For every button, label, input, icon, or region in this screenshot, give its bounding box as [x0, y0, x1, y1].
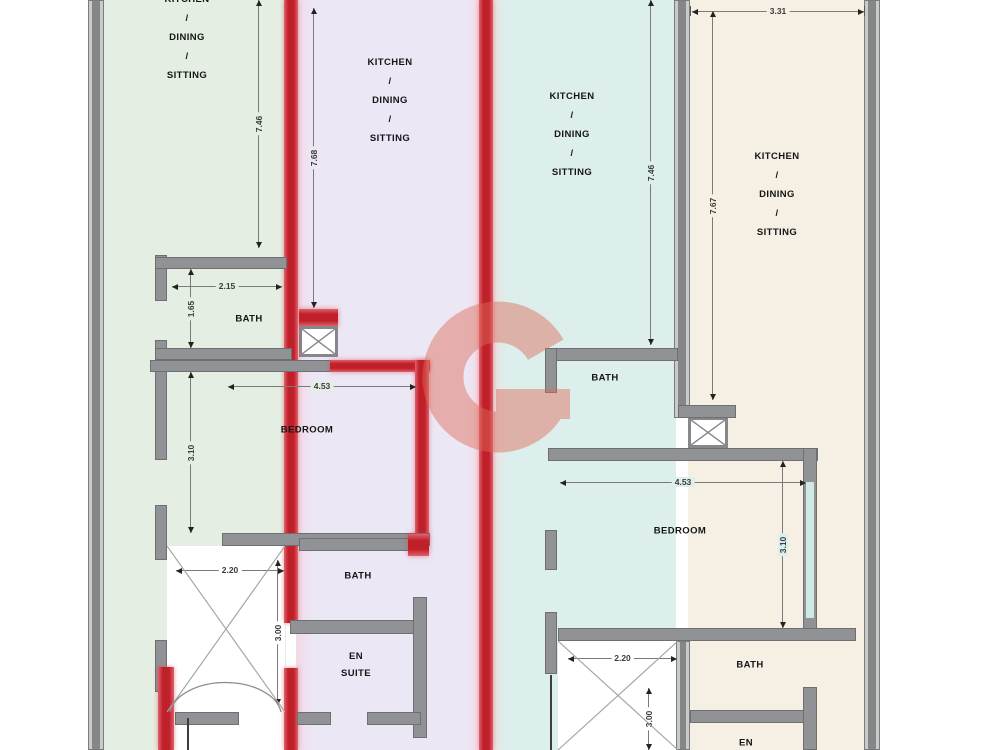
dim-unit1-living-height: 7.46: [258, 0, 259, 248]
dim-label: 7.46: [646, 161, 656, 184]
exterior-wall-left: [88, 0, 104, 750]
dim-unit3-bedroom-width: 4.53: [560, 482, 806, 483]
shaft-red-cap: [299, 309, 338, 326]
room-label-line: DINING: [164, 28, 209, 47]
dim-extension-line: [550, 675, 552, 750]
dim-label: 4.53: [672, 477, 695, 487]
room-label-line: /: [164, 47, 209, 66]
unit-2-living-label: KITCHEN / DINING / SITTING: [367, 53, 412, 148]
unit-3-living-label: KITCHEN / DINING / SITTING: [549, 87, 594, 182]
room-label-line: EN: [341, 648, 371, 665]
wall-segment: [545, 530, 557, 570]
unit-4-bath-label: BATH: [736, 660, 763, 671]
dim-unit4-living-height: 7.67: [712, 11, 713, 400]
wall-segment: [803, 687, 817, 750]
wall-segment: [290, 620, 422, 634]
wall-segment: [690, 710, 805, 723]
dim-unit2-living-height: 7.68: [313, 8, 314, 308]
unit-3-bedroom-label: BEDROOM: [654, 526, 706, 537]
dim-unit1-shaft-width: 2.20: [176, 570, 284, 571]
shaft-x-diagonal: [691, 420, 725, 445]
dim-label: 1.65: [186, 297, 196, 320]
party-wall-red: [479, 0, 493, 750]
wall-segment-red: [408, 534, 429, 556]
room-label-line: /: [549, 144, 594, 163]
room-label-line: /: [367, 110, 412, 129]
room-label-line: KITCHEN: [549, 87, 594, 106]
wall-segment: [545, 612, 557, 674]
shaft-x-diagonal: [691, 420, 725, 445]
wall-segment: [155, 505, 167, 560]
dim-label: 7.67: [708, 194, 718, 217]
unit-1-bath-label: BATH: [235, 314, 262, 325]
dim-label: 3.00: [273, 621, 283, 644]
wall-segment: [297, 712, 331, 725]
party-wall-red: [284, 668, 298, 750]
unit-1-bedroom-label: BEDROOM: [281, 425, 333, 436]
room-label-line: SITTING: [367, 129, 412, 148]
wall-segment: [545, 348, 557, 393]
wall-segment: [175, 712, 239, 725]
dim-unit1-shaft-height: 3.00: [277, 560, 278, 705]
dim-unit3-shaft-width: 2.20: [568, 658, 677, 659]
room-label-line: DINING: [754, 185, 799, 204]
party-wall-red: [284, 0, 298, 623]
unit-4-living-label: KITCHEN / DINING / SITTING: [754, 147, 799, 242]
window-opening: [806, 482, 814, 618]
wall-segment-red: [158, 667, 174, 750]
dim-extension-line: [187, 718, 189, 750]
dim-unit3-shaft-height: 3.00: [648, 688, 649, 750]
dim-label: 7.46: [254, 113, 264, 136]
dim-label: 7.68: [309, 147, 319, 170]
unit-3-bath-label: BATH: [591, 373, 618, 384]
wall-segment: [299, 538, 411, 551]
dim-label: 3.00: [644, 708, 654, 731]
room-label-line: KITCHEN: [367, 53, 412, 72]
room-label-line: /: [754, 166, 799, 185]
dim-unit1-bath-width: 2.15: [172, 286, 282, 287]
room-label-line: SUITE: [341, 665, 371, 682]
dim-unit1-bath-height: 1.65: [190, 269, 191, 348]
dim-unit4-top-width: 3.31: [692, 11, 864, 12]
room-label-line: DINING: [367, 91, 412, 110]
wall-segment: [678, 405, 736, 418]
service-shaft-xbox: [299, 326, 338, 357]
dim-label: 3.10: [186, 441, 196, 464]
shaft-x-diagonal: [302, 329, 335, 354]
wall-segment: [367, 712, 421, 725]
floor-plan-canvas: 3.31 2.15 4.53 2.20 4.53 2.20 7.46 7.68 …: [0, 0, 1000, 750]
dim-label: 3.10: [778, 533, 788, 556]
dim-label: 3.31: [767, 6, 790, 16]
unit-1-living-label: KITCHEN / DINING / SITTING: [164, 0, 209, 85]
room-label-line: /: [754, 204, 799, 223]
corridor-wall: [676, 641, 690, 750]
wall-segment: [155, 348, 292, 360]
service-shaft-xbox: [688, 417, 728, 448]
door-swing-arc: [170, 683, 281, 712]
dim-label: 4.53: [311, 381, 334, 391]
exterior-wall-right: [864, 0, 880, 750]
dim-label: 2.15: [216, 281, 239, 291]
room-label-line: SITTING: [164, 66, 209, 85]
wall-segment: [558, 628, 856, 641]
dim-label: 2.20: [611, 653, 634, 663]
room-label-line: KITCHEN: [164, 0, 209, 9]
wall-segment: [150, 360, 332, 372]
dim-unit3-living-height: 7.46: [650, 0, 651, 345]
dim-tick: [690, 6, 691, 16]
wall-segment: [548, 448, 818, 461]
dim-unit1-bedroom-height: 3.10: [190, 372, 191, 533]
wall-segment: [545, 348, 678, 361]
unit-4-ensuite-label: EN: [739, 738, 753, 749]
room-label-line: SITTING: [754, 223, 799, 242]
unit-2-ensuite-label: EN SUITE: [341, 648, 371, 682]
dim-tick: [864, 6, 865, 16]
unit-2-bath-label: BATH: [344, 571, 371, 582]
room-label-line: SITTING: [549, 163, 594, 182]
wall-segment-red: [415, 360, 429, 546]
dim-unit3-bedroom-height: 3.10: [782, 461, 783, 628]
room-label-line: /: [367, 72, 412, 91]
shaft-x-diagonal: [302, 329, 335, 354]
wall-segment: [155, 257, 287, 269]
dim-unit1-bedroom-width: 4.53: [228, 386, 416, 387]
room-label-line: /: [549, 106, 594, 125]
dim-label: 2.20: [219, 565, 242, 575]
room-label-line: KITCHEN: [754, 147, 799, 166]
room-label-line: DINING: [549, 125, 594, 144]
room-label-line: /: [164, 9, 209, 28]
